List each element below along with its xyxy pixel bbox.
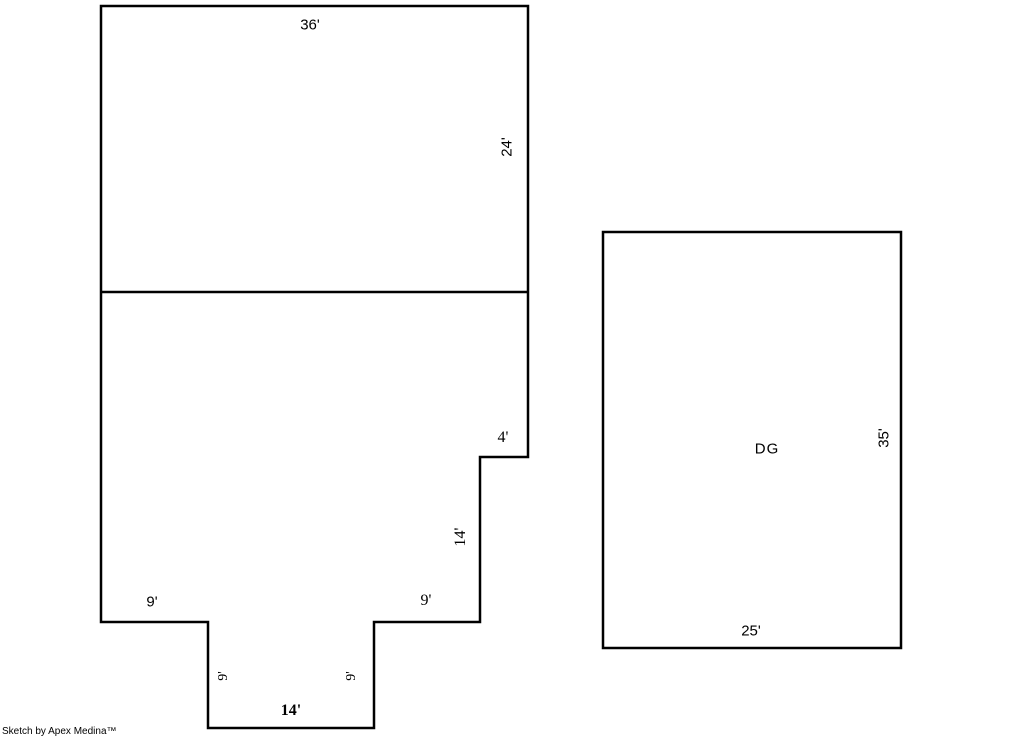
dimension-label-left-shelf: 9' [146, 595, 157, 610]
sketch-credit-text: Sketch by Apex Medina™ [2, 726, 117, 737]
dimension-label-lower-right-height: 14' [453, 528, 469, 547]
dimension-label-notch-right: 9' [345, 671, 359, 681]
dimension-label-right-shelf: 9' [421, 593, 432, 609]
dimension-label-bottom-width: 14' [281, 703, 301, 719]
dimension-label-garage-right-height: 35' [877, 428, 892, 448]
dimension-label-garage-bottom-width: 25' [741, 624, 761, 639]
garage-name-label: DG [755, 442, 780, 457]
dimension-label-notch-left: 9' [217, 671, 231, 681]
main-building-outline [101, 6, 528, 728]
dimension-label-upper-right-height: 24' [500, 137, 515, 157]
floorplan-sketch [0, 0, 1013, 743]
sketch-canvas: 36' 24' 4' 14' 9' 9' 9' 9' 14' DG 35' 25… [0, 0, 1013, 743]
garage-outline [603, 232, 901, 648]
dimension-label-step: 4' [498, 430, 509, 446]
dimension-label-top-width: 36' [300, 18, 320, 33]
